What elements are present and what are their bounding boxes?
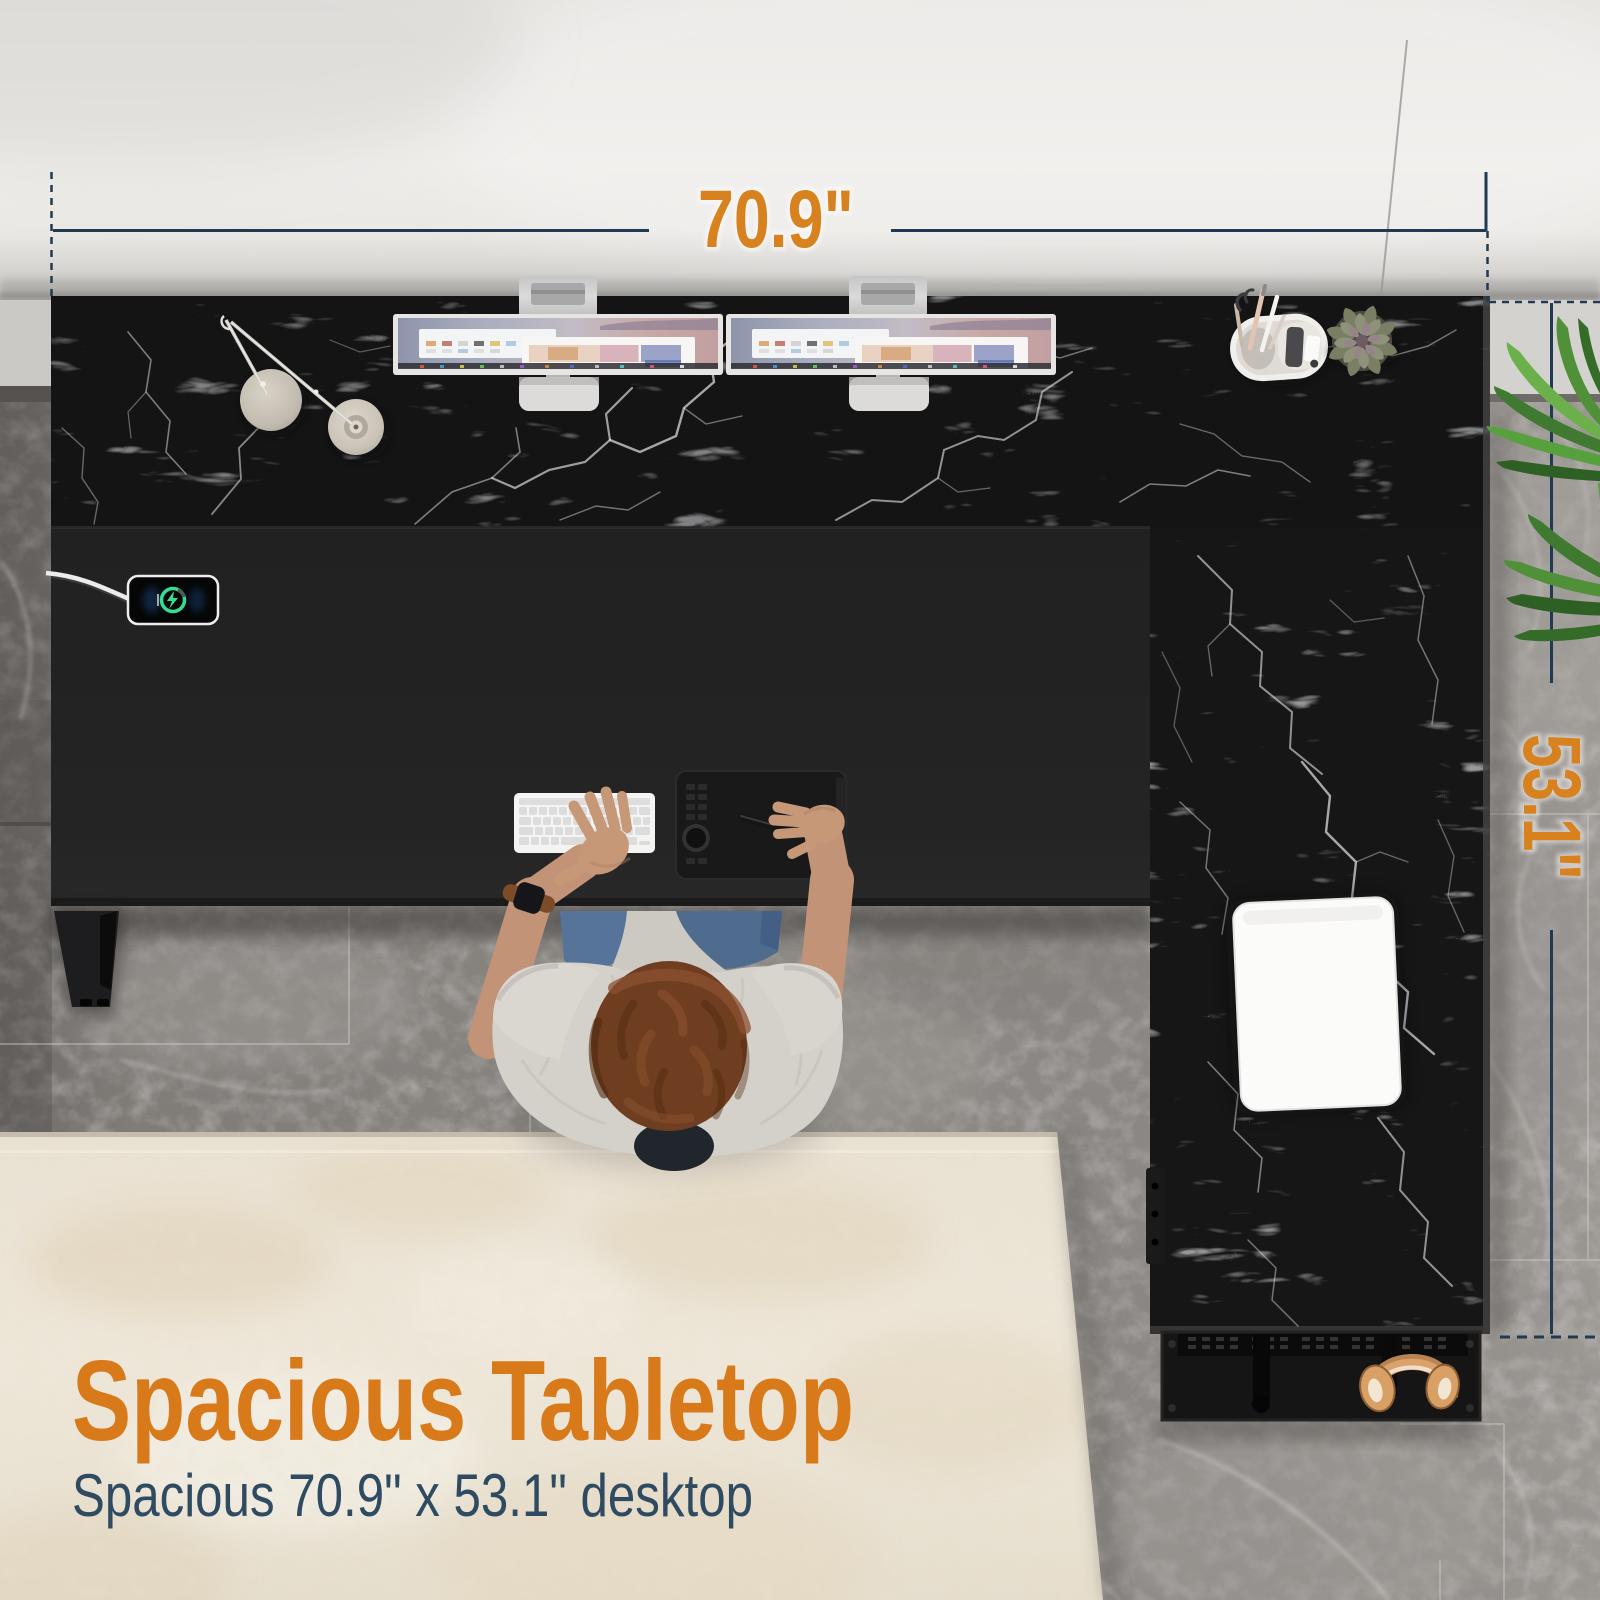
svg-text:70.9": 70.9" <box>698 174 854 265</box>
svg-text:Spacious Tabletop: Spacious Tabletop <box>72 1338 854 1465</box>
svg-text:Spacious 70.9" x 53.1" desktop: Spacious 70.9" x 53.1" desktop <box>72 1462 753 1529</box>
svg-text:53.1": 53.1" <box>1506 734 1597 880</box>
